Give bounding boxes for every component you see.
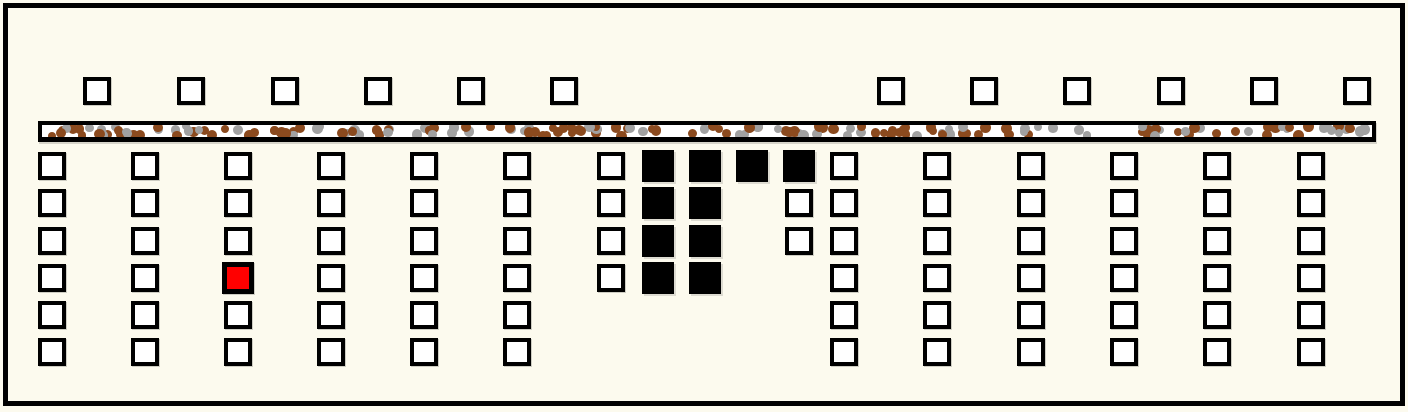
grid-cell[interactable] [410, 338, 438, 366]
speckle-dot [1231, 127, 1240, 136]
grid-cell[interactable] [597, 152, 625, 180]
top-row-cell[interactable] [1063, 77, 1091, 105]
speckle-dot [348, 127, 357, 136]
top-row-cell[interactable] [83, 77, 111, 105]
grid-cell-filled[interactable] [642, 187, 674, 219]
speckle-dot [846, 125, 855, 133]
grid-cell[interactable] [1297, 152, 1325, 180]
speckle-dot [244, 130, 255, 137]
speckle-dot [625, 125, 635, 133]
grid-cell[interactable] [597, 189, 625, 217]
speckle-dot [172, 131, 182, 138]
grid-cell[interactable] [1017, 264, 1045, 292]
top-row-cell[interactable] [1157, 77, 1185, 105]
speckle-dot [337, 128, 348, 137]
grid-cell[interactable] [503, 189, 531, 217]
grid-cell[interactable] [317, 338, 345, 366]
grid-cell[interactable] [923, 301, 951, 329]
grid-cell[interactable] [224, 227, 252, 255]
speckle-dot [938, 130, 947, 137]
top-row-cell[interactable] [457, 77, 485, 105]
top-row-cell[interactable] [1250, 77, 1278, 105]
speckle-dot [195, 126, 203, 134]
speckle-dot [567, 125, 576, 132]
grid-cell[interactable] [503, 264, 531, 292]
speckle-dot [912, 131, 922, 137]
speckle-dot [184, 126, 193, 135]
grid-cell[interactable] [503, 152, 531, 180]
grid-cell[interactable] [1203, 301, 1231, 329]
grid-cell[interactable] [1203, 152, 1231, 180]
speckle-dot [871, 128, 881, 137]
top-row-cell[interactable] [177, 77, 205, 105]
speckle-dot [94, 129, 104, 137]
grid-cell[interactable] [923, 338, 951, 366]
speckle-dot [1303, 125, 1314, 132]
grid-cell[interactable] [131, 301, 159, 329]
grid-cell[interactable] [317, 301, 345, 329]
grid-cell[interactable] [1110, 301, 1138, 329]
grid-cell[interactable] [38, 264, 66, 292]
speckle-dot [233, 125, 243, 135]
grid-cell[interactable] [38, 227, 66, 255]
speckle-dot [638, 127, 648, 137]
grid-cell[interactable] [224, 152, 252, 180]
speckle-dot [1285, 125, 1294, 132]
grid-cell[interactable] [923, 189, 951, 217]
speckle-dot [207, 130, 217, 137]
grid-cell[interactable] [224, 301, 252, 329]
grid-cell[interactable] [317, 152, 345, 180]
grid-cell[interactable] [830, 264, 858, 292]
speckle-dot [1212, 129, 1221, 137]
grid-cell[interactable] [317, 189, 345, 217]
speckle-dot [114, 126, 123, 135]
grid-cell[interactable] [38, 189, 66, 217]
speckle-strip-inner [42, 125, 1372, 137]
grid-cell[interactable] [131, 152, 159, 180]
speckle-dot [651, 125, 662, 136]
grid-cell[interactable] [923, 152, 951, 180]
grid-cell[interactable] [1017, 301, 1045, 329]
speckle-dot [828, 125, 839, 134]
grid-cell-filled[interactable] [642, 225, 674, 257]
grid-cell[interactable] [1203, 338, 1231, 366]
grid-cell[interactable] [38, 152, 66, 180]
grid-cell[interactable] [410, 264, 438, 292]
grid-cell[interactable] [830, 338, 858, 366]
grid-cell[interactable] [597, 227, 625, 255]
top-row-cell[interactable] [970, 77, 998, 105]
grid-cell-highlighted[interactable] [222, 262, 254, 294]
grid-cell-filled[interactable] [689, 150, 721, 182]
speckle-dot [902, 130, 910, 137]
speckle-dot [48, 132, 57, 137]
speckle-dot [1293, 130, 1304, 137]
grid-cell[interactable] [503, 338, 531, 366]
top-row-cell[interactable] [271, 77, 299, 105]
grid-cell[interactable] [1110, 338, 1138, 366]
speckle-dot [538, 131, 548, 137]
speckle-dot [1083, 131, 1092, 137]
grid-cell[interactable] [830, 227, 858, 255]
speckle-dot [428, 130, 437, 137]
grid-cell[interactable] [1297, 189, 1325, 217]
grid-cell-filled[interactable] [642, 262, 674, 294]
grid-cell[interactable] [131, 189, 159, 217]
grid-cell-filled[interactable] [689, 225, 721, 257]
speckle-dot [688, 129, 697, 137]
speckle-dot [611, 125, 622, 133]
grid-cell[interactable] [1203, 189, 1231, 217]
speckle-dot [857, 125, 865, 131]
grid-cell[interactable] [38, 338, 66, 366]
grid-cell[interactable] [1110, 227, 1138, 255]
speckle-dot [880, 129, 888, 137]
speckle-dot [1244, 127, 1253, 136]
grid-cell-filled[interactable] [736, 150, 768, 182]
speckle-dot [974, 130, 983, 137]
speckle-dot [1048, 125, 1058, 133]
top-row-cell[interactable] [550, 77, 578, 105]
grid-cell-filled[interactable] [689, 262, 721, 294]
speckle-dot [530, 127, 540, 137]
grid-cell[interactable] [1297, 227, 1325, 255]
panel [0, 0, 1408, 412]
grid-cell[interactable] [410, 301, 438, 329]
grid-cell[interactable] [224, 189, 252, 217]
speckle-dot [447, 128, 457, 137]
grid-cell[interactable] [1110, 189, 1138, 217]
speckle-dot [1034, 125, 1042, 131]
speckle-dot [123, 129, 132, 137]
grid-cell[interactable] [38, 301, 66, 329]
speckle-dot [798, 130, 809, 137]
speckle-strip [38, 121, 1376, 142]
grid-cell[interactable] [1110, 152, 1138, 180]
speckle-dot [85, 125, 94, 132]
grid-cell[interactable] [923, 227, 951, 255]
speckle-dot [486, 125, 495, 131]
grid-cell[interactable] [131, 227, 159, 255]
grid-cell[interactable] [785, 189, 813, 217]
grid-cell[interactable] [1017, 189, 1045, 217]
speckle-dot [78, 131, 87, 137]
grid-cell[interactable] [1203, 264, 1231, 292]
grid-cell-filled[interactable] [689, 187, 721, 219]
speckle-dot [270, 126, 279, 135]
grid-cell[interactable] [224, 338, 252, 366]
top-row-cell[interactable] [877, 77, 905, 105]
grid-cell[interactable] [1297, 301, 1325, 329]
grid-cell-filled[interactable] [642, 150, 674, 182]
grid-cell[interactable] [830, 301, 858, 329]
grid-cell[interactable] [1110, 264, 1138, 292]
speckle-dot [1345, 125, 1354, 133]
top-row-cell[interactable] [1343, 77, 1371, 105]
grid-cell[interactable] [1203, 227, 1231, 255]
grid-cell[interactable] [317, 227, 345, 255]
speckle-dot [135, 130, 145, 137]
speckle-dot [1319, 125, 1328, 133]
grid-cell[interactable] [503, 227, 531, 255]
grid-cell[interactable] [1297, 338, 1325, 366]
grid-cell[interactable] [1017, 152, 1045, 180]
speckle-dot [56, 128, 66, 137]
speckle-dot [1355, 126, 1366, 137]
grid-cell[interactable] [923, 264, 951, 292]
grid-cell[interactable] [785, 227, 813, 255]
grid-cell[interactable] [131, 264, 159, 292]
grid-cell[interactable] [830, 152, 858, 180]
top-row-cell[interactable] [364, 77, 392, 105]
grid-cell[interactable] [1017, 338, 1045, 366]
grid-cell[interactable] [410, 227, 438, 255]
grid-cell[interactable] [1017, 227, 1045, 255]
grid-cell[interactable] [1297, 264, 1325, 292]
grid-cell[interactable] [131, 338, 159, 366]
grid-cell[interactable] [410, 152, 438, 180]
grid-cell[interactable] [597, 264, 625, 292]
grid-cell[interactable] [503, 301, 531, 329]
speckle-dot [383, 128, 392, 137]
speckle-dot [221, 125, 229, 133]
speckle-dot [744, 125, 755, 133]
speckle-dot [1181, 127, 1189, 135]
speckle-dot [372, 126, 381, 135]
speckle-dot [153, 125, 162, 132]
grid-cell[interactable] [830, 189, 858, 217]
grid-cell-filled[interactable] [783, 150, 815, 182]
grid-cell[interactable] [410, 189, 438, 217]
speckle-dot [722, 129, 731, 137]
grid-cell[interactable] [317, 264, 345, 292]
speckle-dot [280, 128, 291, 137]
